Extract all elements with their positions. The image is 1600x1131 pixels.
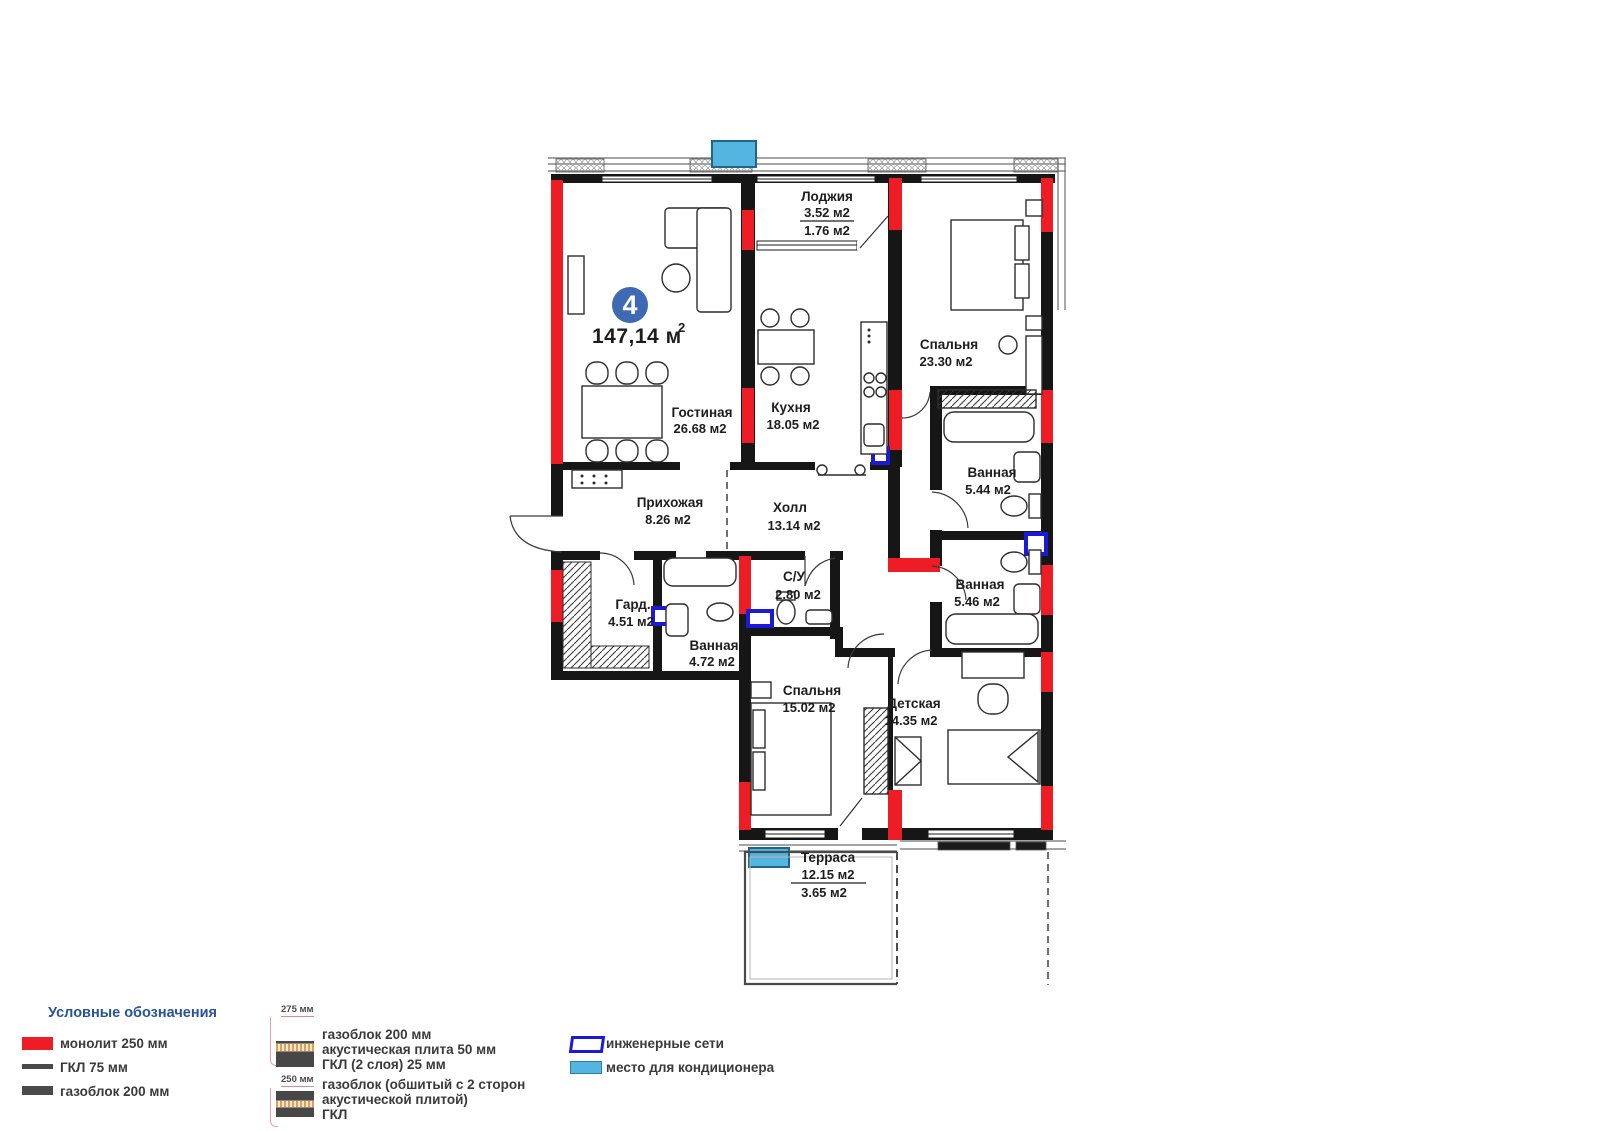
unit-number: 4 (622, 290, 637, 320)
floor-plan-drawing: 4 147,14 м 2 Лоджия 3.52 м2 1.76 м2 Спал… (0, 0, 1600, 1131)
legend-thickness-250: 250 мм (281, 1074, 314, 1087)
toilet (1001, 552, 1027, 572)
room-area: 4.51 м2 (608, 614, 654, 629)
legend-swatch-gasblock (22, 1086, 53, 1095)
kitchen-table (758, 330, 814, 364)
room-area: 5.46 м2 (954, 594, 1000, 609)
room-area: 5.44 м2 (965, 482, 1011, 497)
room-area: 2.80 м2 (775, 587, 821, 602)
washbasin (1014, 584, 1040, 614)
room-label-bath-472: Ванная 4.72 м2 (689, 638, 738, 669)
room-label-bath-544: Ванная 5.44 м2 (965, 465, 1016, 497)
room-area: 14.35 м2 (885, 713, 938, 728)
room-area: 4.72 м2 (689, 654, 735, 669)
shoe-bench (572, 470, 622, 488)
stool (791, 309, 809, 327)
legend-title: Условные обозначения (48, 1005, 217, 1021)
washbasin (1014, 452, 1040, 482)
room-name: Детская (887, 696, 940, 711)
wardrobe (591, 646, 649, 668)
balcony-door-swing (857, 216, 888, 250)
legend-line: ГКЛ (2 слоя) 25 мм (322, 1057, 496, 1072)
room-name: Гостиная (671, 405, 732, 420)
sofa (697, 208, 731, 312)
chair (616, 440, 638, 462)
bathroom-472-furniture (664, 558, 736, 636)
wardrobe (895, 737, 921, 785)
stove-burner (864, 387, 874, 397)
legend-item-engineering: инженерные сети (606, 1036, 724, 1051)
toilet (1001, 496, 1027, 516)
desk (962, 652, 1024, 678)
legend-item-ac: место для кондиционера (606, 1060, 774, 1075)
nightstand (1026, 316, 1042, 330)
pillow (753, 710, 765, 748)
room-label-kitchen: Кухня 18.05 м2 (767, 400, 820, 432)
room-name: Спальня (920, 337, 978, 352)
chair (616, 362, 638, 384)
stool (761, 309, 779, 327)
pillow (1015, 264, 1029, 298)
chair (586, 440, 608, 462)
legend-swatch-layered-275 (276, 1041, 314, 1067)
desk (1026, 336, 1042, 394)
legend-lines-275: газоблок 200 мм акустическая плита 50 мм… (322, 1027, 496, 1073)
chair (646, 440, 668, 462)
room-area: 15.02 м2 (783, 700, 836, 715)
total-area: 147,14 м 2 (592, 320, 685, 348)
kitchen-furniture (758, 309, 887, 475)
stool (791, 367, 809, 385)
entrance-door (510, 516, 563, 552)
room-label-bedroom-15: Спальня 15.02 м2 (783, 683, 842, 715)
room-name: Ванная (690, 638, 739, 653)
bedroom-23-furniture (938, 200, 1042, 408)
washbasin (806, 610, 832, 624)
bedroom-23-door (902, 392, 930, 418)
room-label-wc: С/У 2.80 м2 (775, 569, 821, 602)
nightstand (751, 682, 771, 698)
stove-burner (864, 373, 874, 383)
toilet (777, 600, 795, 624)
room-name: Лоджия (801, 189, 853, 204)
chair (586, 362, 608, 384)
legend-swatch-layered-250 (276, 1091, 314, 1117)
room-name: Гард. (615, 597, 650, 612)
legend-line: ГКЛ (322, 1107, 525, 1122)
room-label-entry-hall: Прихожая 8.26 м2 (637, 495, 704, 527)
nightstand (1026, 200, 1042, 216)
wardrobe (563, 562, 591, 668)
dining-table (582, 386, 662, 438)
room-name: Кухня (771, 400, 810, 415)
chair (978, 684, 1008, 714)
room-name: Прихожая (637, 495, 704, 510)
room-area-secondary: 3.65 м2 (801, 885, 847, 900)
legend-line: газоблок (обшитый с 2 сторон (322, 1077, 525, 1092)
bathtub (944, 412, 1034, 442)
bathtub (664, 558, 736, 586)
room-label-wardrobe: Гард. 4.51 м2 (608, 597, 654, 629)
room-name: С/У (783, 569, 806, 584)
room-label-terrace: Терраса 12.15 м2 3.65 м2 (791, 850, 866, 900)
hallway-furniture (572, 470, 622, 488)
unit-badge: 4 (612, 287, 648, 323)
total-area-value: 147,14 м (592, 325, 682, 348)
bathtub (946, 614, 1038, 644)
chair (646, 362, 668, 384)
stool (761, 367, 779, 385)
kids-room-door (898, 650, 932, 684)
total-area-sup: 2 (678, 320, 685, 335)
closet (938, 390, 1036, 408)
washbasin (666, 604, 688, 636)
tv-unit (568, 256, 584, 314)
room-area: 13.14 м2 (768, 518, 821, 533)
legend-swatch-monolith (22, 1037, 53, 1050)
door-roller (855, 465, 865, 475)
legend-line: акустическая плита 50 мм (322, 1042, 496, 1057)
legend-item-gkl: ГКЛ 75 мм (60, 1060, 128, 1075)
legend-swatch-engineering (569, 1036, 605, 1053)
pouf (999, 336, 1017, 354)
stove-burner (876, 373, 886, 383)
room-area: 26.68 м2 (674, 421, 727, 436)
coffee-table (662, 264, 690, 292)
legend-line: газоблок 200 мм (322, 1027, 496, 1042)
room-label-living: Гостиная 26.68 м2 (671, 405, 732, 436)
toilet-tank (1029, 494, 1041, 518)
room-name: Терраса (801, 850, 856, 865)
room-area: 23.30 м2 (920, 354, 973, 369)
room-area: 3.52 м2 (804, 205, 850, 220)
toilet (707, 603, 733, 621)
door-roller (817, 465, 827, 475)
toilet-tank (1029, 550, 1041, 574)
room-label-bedroom-23: Спальня 23.30 м2 (920, 337, 979, 369)
kitchen-sink (864, 424, 884, 446)
room-name: Ванная (968, 465, 1017, 480)
room-area: 12.15 м2 (802, 867, 855, 882)
room-label-bath-546: Ванная 5.46 м2 (954, 577, 1004, 609)
room-name: Спальня (783, 683, 841, 698)
room-area: 8.26 м2 (645, 512, 691, 527)
stove-burner (876, 387, 886, 397)
legend-line: акустической плитой) (322, 1092, 525, 1107)
pillow (1015, 226, 1029, 260)
room-area: 18.05 м2 (767, 417, 820, 432)
room-area-secondary: 1.76 м2 (804, 223, 850, 238)
legend-swatch-ac (570, 1061, 602, 1074)
legend-item-gasblock: газоблок 200 мм (60, 1084, 169, 1099)
terrace-door-swing (838, 798, 862, 840)
legend-thickness-275: 275 мм (281, 1004, 314, 1017)
room-name: Ванная (956, 577, 1005, 592)
room-name: Холл (773, 500, 807, 515)
legend-lines-250: газоблок (обшитый с 2 сторон акустическо… (322, 1077, 525, 1123)
bed (951, 220, 1023, 310)
room-label-hall: Холл 13.14 м2 (768, 500, 821, 533)
room-label-loggia: Лоджия 3.52 м2 1.76 м2 (800, 189, 854, 238)
bath-544-door (932, 492, 968, 528)
legend-item-monolith: монолит 250 мм (60, 1036, 168, 1051)
legend-swatch-gkl (22, 1064, 53, 1069)
pillow (753, 752, 765, 790)
floor-plan-page: 4 147,14 м 2 Лоджия 3.52 м2 1.76 м2 Спал… (0, 0, 1600, 1131)
